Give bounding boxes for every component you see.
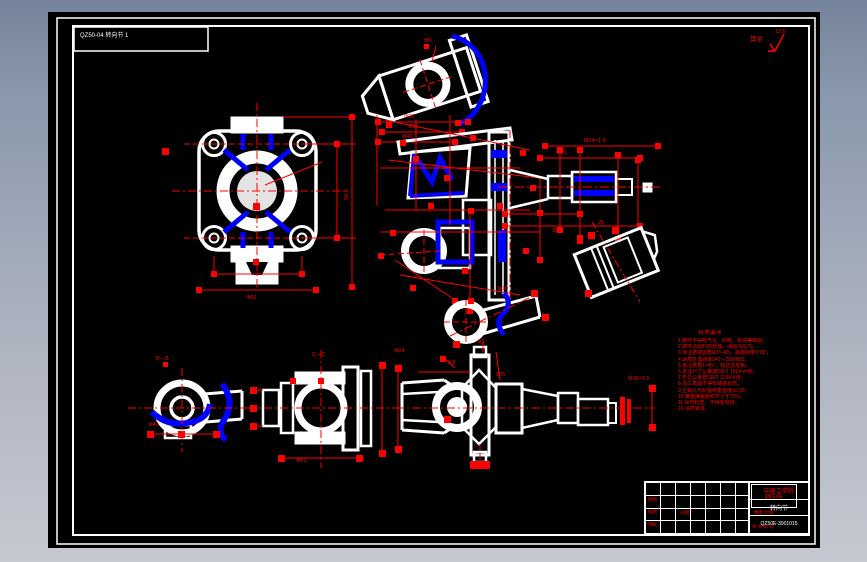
title-school: 中原工学院	[764, 486, 794, 495]
dim-label: 50.8	[344, 189, 350, 200]
title-block-right-column: 中原工学院 转向节 QZ50E-3001015	[748, 483, 808, 533]
dim-label: Φ9	[477, 339, 484, 345]
housing-dimensions[interactable]	[248, 350, 395, 468]
title-block-grid	[646, 483, 750, 533]
view-spindle-shaft[interactable]	[498, 143, 662, 242]
dim-label: Φ62	[246, 295, 257, 301]
dim-label: Φ40	[402, 134, 413, 140]
title-block: 转向节 制图 描图 审核 45钢 数量 比例 共 张 第 张 中原工学院 转向节…	[644, 481, 810, 535]
dim-label: Φ25	[404, 114, 415, 120]
dim-label: 1:8	[448, 360, 456, 366]
dim-label: Φ52	[296, 458, 307, 464]
central-section-highlights[interactable]	[410, 150, 507, 262]
technical-notes: 技术要求 1.铸件不得有气孔、砂眼、裂纹等缺陷； 2.铸件须经时效处理，消除内应…	[678, 330, 796, 412]
dim-label: 25	[598, 220, 604, 226]
title-drawing-number: QZ50E-3001015	[761, 521, 798, 527]
dim-label: Φ40	[148, 422, 159, 428]
title-cell-material: 45钢	[680, 510, 690, 515]
notes-title: 技术要求	[698, 330, 796, 337]
dim-label: Φ24	[394, 348, 405, 354]
title-cell-tracer: 描图	[648, 509, 657, 514]
surface-note-value: 12.5	[775, 29, 786, 35]
dim-label: Φ30	[556, 150, 567, 156]
view-flange-front[interactable]	[162, 103, 356, 293]
desktop-background: QZ50-04 转向节 1 其余 12.5 Φ9 Φ25 Φ30 Φ40 50.…	[0, 0, 867, 562]
dim-label: 302	[552, 228, 561, 234]
view-housing-section[interactable]	[248, 350, 395, 468]
title-cell-checker: 审核	[648, 522, 657, 527]
note-line: 12.涂防锈漆。	[678, 406, 796, 412]
drawing-header-label: QZ50-04 转向节 1	[80, 33, 128, 40]
view-partial-ring[interactable]	[128, 362, 250, 452]
dim-label: Φ30	[408, 124, 419, 130]
dim-label: M18×1.5	[628, 376, 650, 382]
dim-label: M24×1.5	[584, 138, 606, 144]
dim-label: R10	[498, 286, 508, 292]
cad-drawing	[0, 0, 867, 562]
view-steering-knuckle[interactable]	[395, 342, 656, 470]
section-label: C—C	[312, 352, 325, 358]
surface-note-prefix: 其余	[750, 37, 763, 43]
surface-finish-symbol	[768, 34, 784, 51]
section-label: B—B	[156, 356, 169, 362]
view-angled-bracket[interactable]	[574, 222, 667, 302]
dim-label: 105	[496, 372, 505, 378]
title-part-name: 转向节	[770, 503, 788, 512]
title-cell-drafter: 制图	[648, 497, 657, 502]
dim-label: Φ9	[424, 38, 431, 44]
